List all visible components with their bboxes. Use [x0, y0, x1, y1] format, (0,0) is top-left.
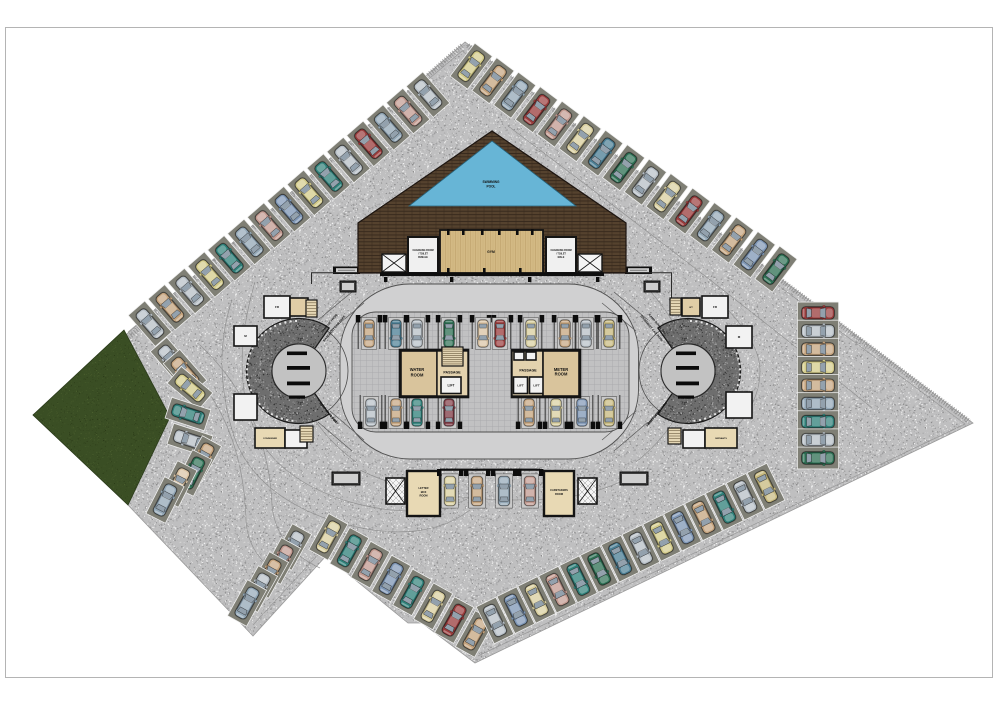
- svg-text:LETTER: LETTER: [418, 486, 428, 490]
- svg-text:SERVANTS: SERVANTS: [715, 437, 727, 440]
- svg-text:CONDENSER: CONDENSER: [263, 438, 277, 440]
- svg-text:BOX: BOX: [421, 490, 427, 494]
- svg-text:LIFT: LIFT: [533, 383, 539, 387]
- svg-text:GYM: GYM: [487, 250, 495, 254]
- svg-text:LIFT: LIFT: [517, 383, 523, 387]
- svg-text:ROOM: ROOM: [411, 373, 424, 378]
- svg-text:CHANGING ROOM: CHANGING ROOM: [550, 249, 571, 252]
- svg-text:/ TOILET: / TOILET: [418, 253, 428, 256]
- svg-text:CHANGING ROOM: CHANGING ROOM: [412, 249, 433, 252]
- svg-text:ROOM: ROOM: [419, 494, 427, 498]
- svg-text:WATER: WATER: [410, 367, 425, 372]
- svg-text:PASSAGE: PASSAGE: [443, 371, 461, 375]
- svg-text:CARETAKERS: CARETAKERS: [550, 488, 568, 492]
- svg-text:/ TOILET: / TOILET: [556, 253, 566, 256]
- svg-text:MALE: MALE: [558, 256, 565, 259]
- svg-text:ROOM: ROOM: [555, 372, 568, 377]
- svg-text:SWIMMING: SWIMMING: [483, 180, 501, 184]
- svg-text:LIFT: LIFT: [448, 383, 455, 387]
- svg-text:FEMALE: FEMALE: [418, 256, 428, 259]
- svg-text:ROOM: ROOM: [555, 492, 563, 496]
- svg-text:PASSAGE: PASSAGE: [519, 369, 537, 373]
- svg-text:POOL: POOL: [486, 185, 495, 189]
